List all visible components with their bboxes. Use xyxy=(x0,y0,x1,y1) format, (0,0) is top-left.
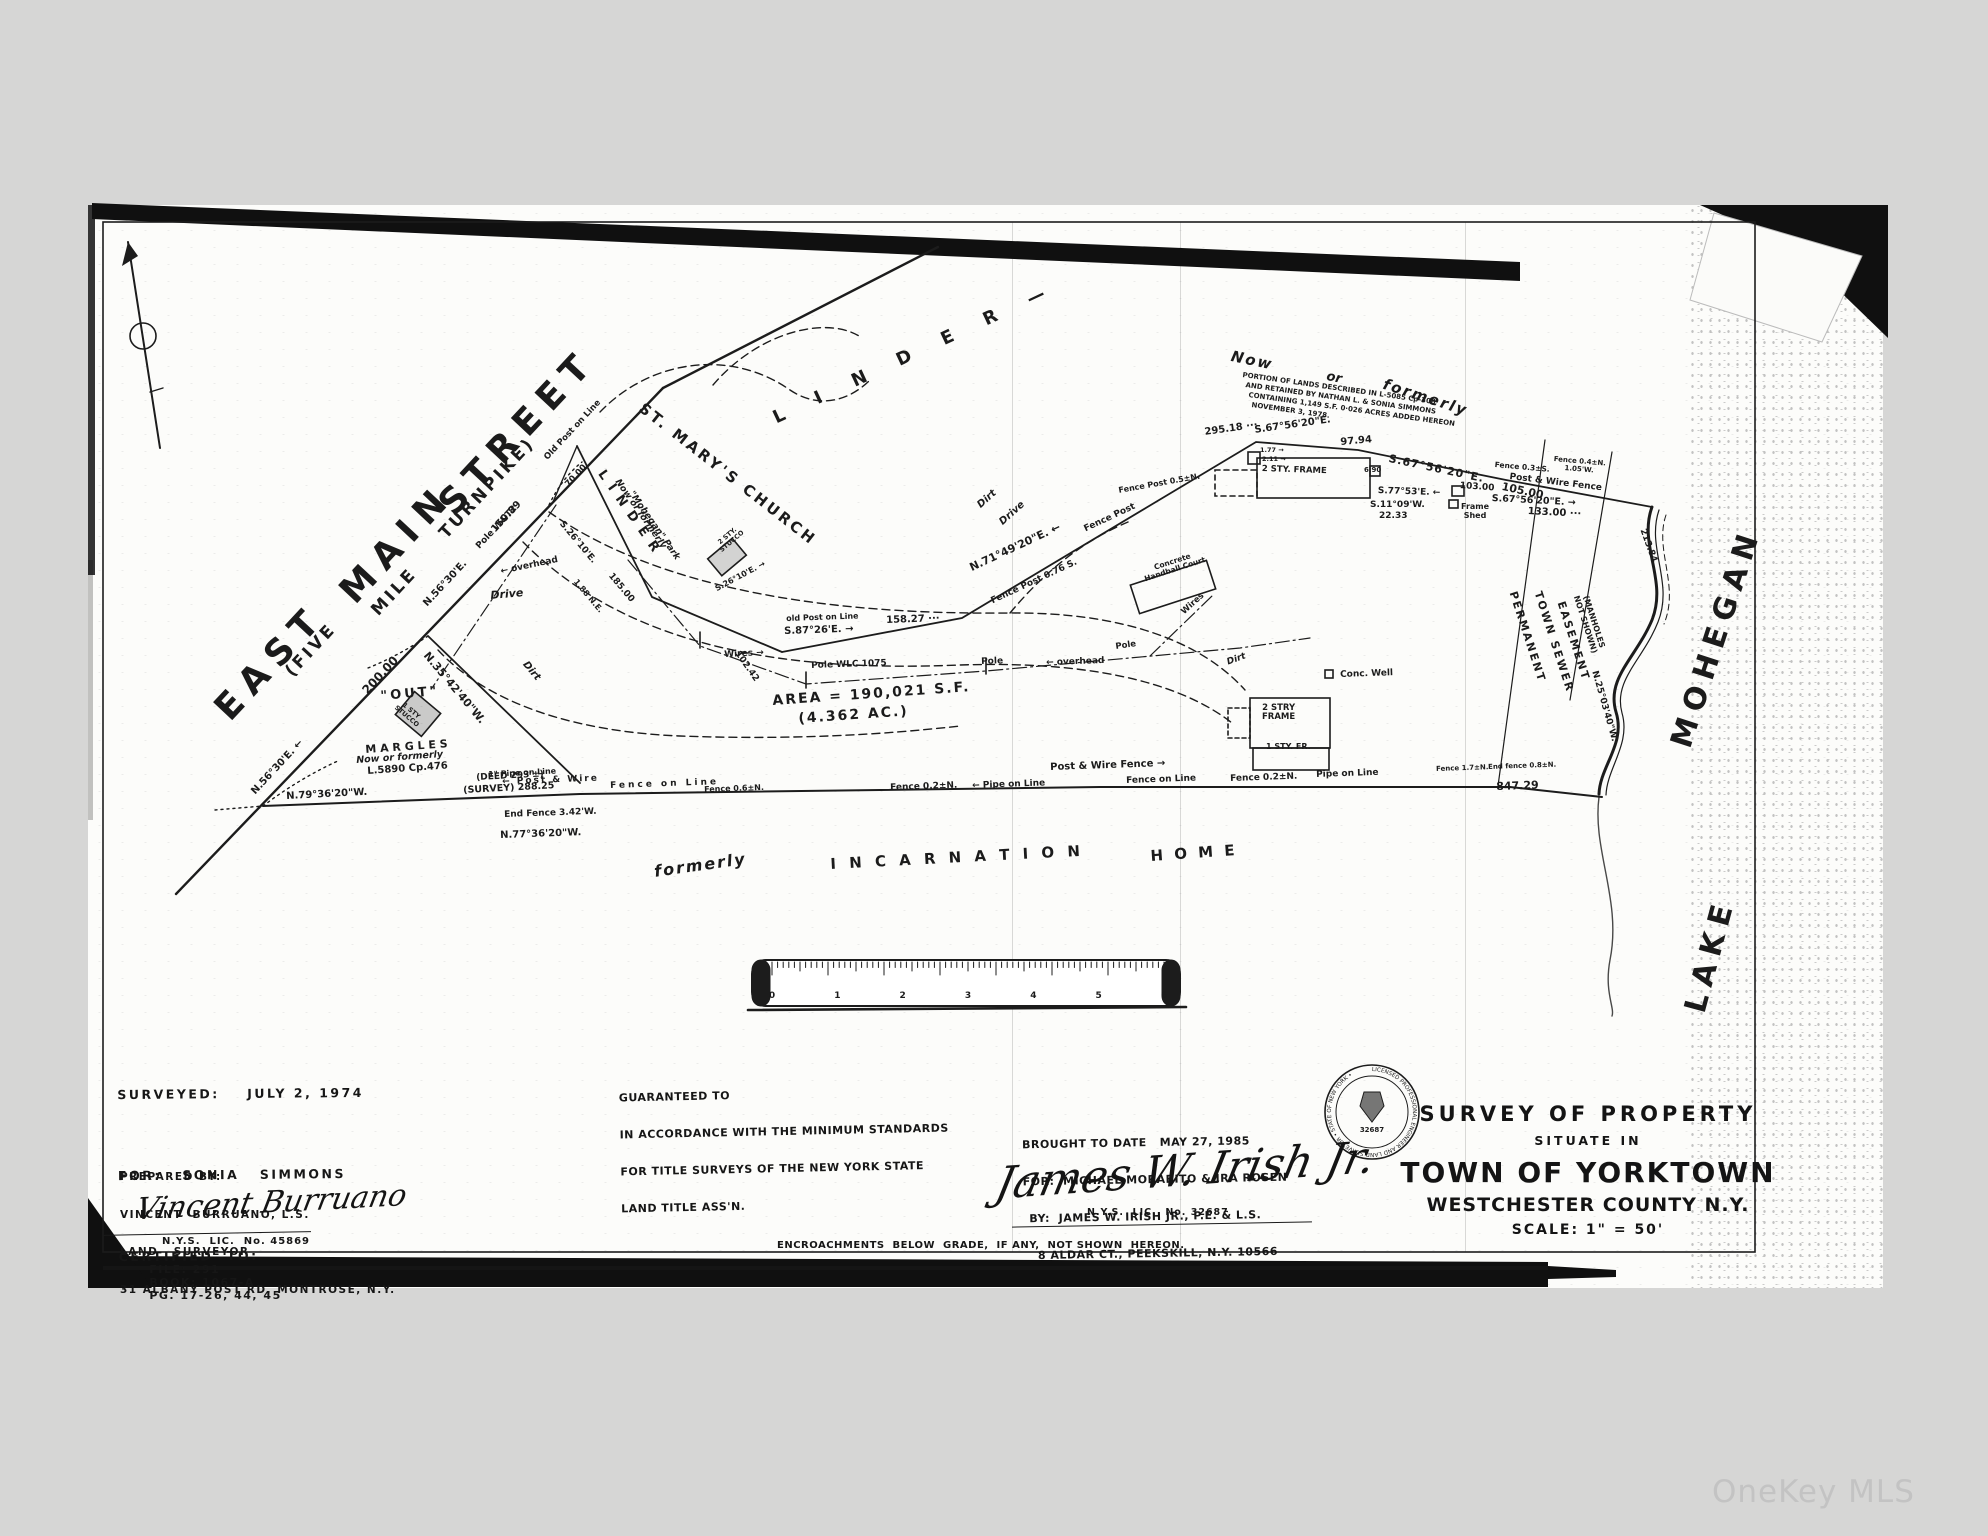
distance-label: 22.33 xyxy=(1379,512,1407,522)
scale-note: SCALE: 1" = 50' xyxy=(1398,1222,1778,1238)
ruler-number: 2 xyxy=(900,991,906,1001)
wire-note: Wires → xyxy=(724,649,764,661)
book-number: BOOK: 1067-A xyxy=(149,1276,255,1289)
distance-label: 847.29 xyxy=(1496,780,1539,793)
building-label-frame2b: 1 STY. FR. xyxy=(1266,743,1311,752)
guaranteed-block: GUARANTEED TO IN ACCORDANCE WITH THE MIN… xyxy=(618,1061,951,1242)
scale-ruler xyxy=(748,960,1186,1010)
surveyor-license: N.Y.S. LIC. No. 45869 xyxy=(162,1236,310,1247)
scan-artifact-top-bar xyxy=(92,203,1520,281)
offset-note: 6.90 xyxy=(1364,467,1381,475)
watermark: OneKey MLS xyxy=(1712,1474,1915,1510)
ruler-number: 1 xyxy=(834,991,840,1001)
building-label-shed: Frame Shed xyxy=(1461,503,1489,520)
guaranteed-line: IN ACCORDANCE WITH THE MINIMUM STANDARDS xyxy=(620,1123,949,1142)
page-numbers: PG. 17-26, 44, 45 xyxy=(149,1289,281,1302)
surveyed-line: SURVEYED: JULY 2, 1974 xyxy=(117,1079,364,1108)
scan-artifact-left-edge2 xyxy=(88,560,93,820)
ruler-number: 5 xyxy=(1096,991,1102,1001)
encroachments-note: ENCROACHMENTS BELOW GRADE, IF ANY, NOT S… xyxy=(777,1240,1185,1251)
title-line-survey: SURVEY OF PROPERTY xyxy=(1398,1102,1778,1126)
title-line-situate: SITUATE IN xyxy=(1398,1133,1778,1148)
pole-note: Pole xyxy=(981,657,1003,667)
wire-note: ← overhead xyxy=(1046,657,1105,669)
scanned-survey-page: LICENSED PROFESSIONAL ENGINEER AND LAND … xyxy=(0,0,1988,1536)
scan-artifact-bottom-bar2 xyxy=(1548,1266,1616,1279)
file-number: FILE: 291 xyxy=(149,1263,220,1276)
engineer-license: N.Y.S. LIC. No. 32687 xyxy=(1087,1207,1229,1218)
building-label-frame2: 2 STRY FRAME xyxy=(1262,704,1295,722)
ruler-number: 0 xyxy=(769,991,775,1001)
title-block: SURVEY OF PROPERTY SITUATE IN TOWN OF YO… xyxy=(1398,1102,1778,1238)
scan-artifact-left-edge xyxy=(88,205,95,575)
ruler-number: 4 xyxy=(1030,991,1036,1001)
offset-note: 2.11 → xyxy=(1262,456,1286,463)
guaranteed-line: FOR TITLE SURVEYS OF THE NEW YORK STATE xyxy=(620,1160,949,1179)
well-note: Conc. Well xyxy=(1340,669,1393,681)
file-line: FILE: 291 BOOK: 1067-A PG. 17-26, 44, 45 xyxy=(128,1250,283,1315)
guaranteed-line: GUARANTEED TO xyxy=(619,1085,948,1104)
ruler-number: 6 xyxy=(1161,991,1167,1001)
title-line-county: WESTCHESTER COUNTY N.Y. xyxy=(1398,1194,1778,1216)
offset-note: 1.77 → xyxy=(1260,447,1284,454)
distance-label: 158.27 ··· xyxy=(886,614,940,627)
title-line-town: TOWN OF YORKTOWN xyxy=(1398,1156,1778,1189)
bearing-label: S.11°09'W. xyxy=(1370,501,1425,511)
ruler-number: 3 xyxy=(965,991,971,1001)
guaranteed-line: LAND TITLE ASS'N. xyxy=(621,1197,950,1216)
